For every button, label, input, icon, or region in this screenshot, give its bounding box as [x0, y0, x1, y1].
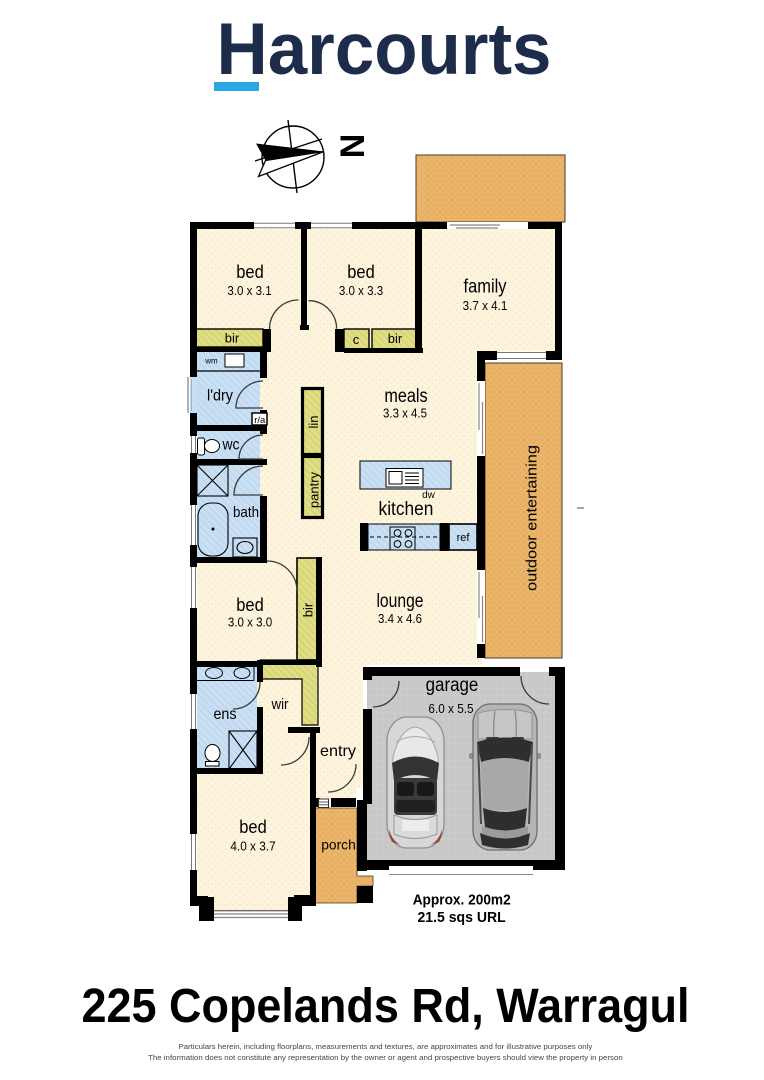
svg-text:bed: bed	[236, 594, 264, 615]
svg-text:Particulars herein, including: Particulars herein, including floorplans…	[179, 1042, 593, 1051]
svg-text:3.0 x 3.0: 3.0 x 3.0	[228, 615, 272, 630]
svg-text:bir: bir	[301, 602, 316, 617]
svg-text:The information does not const: The information does not constitute any …	[148, 1053, 623, 1062]
svg-text:entry: entry	[320, 743, 356, 760]
svg-text:3.0 x 3.3: 3.0 x 3.3	[339, 283, 383, 298]
svg-text:3.4 x 4.6: 3.4 x 4.6	[378, 611, 422, 626]
svg-text:l'dry: l'dry	[207, 388, 233, 405]
svg-text:bath: bath	[233, 504, 259, 521]
svg-text:Harcourts: Harcourts	[217, 9, 552, 90]
svg-text:bir: bir	[225, 331, 240, 346]
svg-text:ens: ens	[214, 706, 237, 723]
svg-text:N: N	[333, 134, 371, 159]
svg-text:outdoor entertaining: outdoor entertaining	[524, 445, 541, 591]
svg-text:lin: lin	[306, 415, 321, 428]
svg-text:kitchen: kitchen	[379, 499, 434, 520]
svg-text:wm: wm	[204, 357, 218, 366]
svg-text:Approx. 200m2: Approx. 200m2	[413, 892, 511, 909]
svg-text:wir: wir	[271, 696, 289, 713]
svg-text:bir: bir	[388, 331, 403, 346]
svg-text:pantry: pantry	[307, 471, 322, 508]
svg-text:3.3 x 4.5: 3.3 x 4.5	[383, 406, 427, 421]
svg-text:meals: meals	[384, 386, 427, 407]
svg-text:lounge: lounge	[376, 591, 423, 612]
svg-text:6.0 x 5.5: 6.0 x 5.5	[428, 701, 473, 716]
svg-text:garage: garage	[426, 675, 479, 696]
svg-text:3.7 x 4.1: 3.7 x 4.1	[463, 298, 508, 313]
svg-text:c: c	[353, 332, 360, 347]
svg-text:family: family	[464, 277, 507, 298]
svg-text:bed: bed	[236, 261, 264, 282]
svg-text:3.0 x 3.1: 3.0 x 3.1	[227, 283, 271, 298]
svg-text:wc: wc	[222, 437, 240, 454]
svg-text:21.5 sqs URL: 21.5 sqs URL	[417, 909, 505, 926]
svg-text:225 Copelands Rd, Warragul: 225 Copelands Rd, Warragul	[82, 980, 690, 1033]
svg-text:ref: ref	[457, 532, 471, 544]
svg-text:porch: porch	[321, 837, 356, 853]
svg-text:r/a: r/a	[254, 415, 266, 426]
svg-text:bed: bed	[347, 261, 375, 282]
svg-text:4.0 x 3.7: 4.0 x 3.7	[230, 839, 275, 854]
svg-text:bed: bed	[239, 816, 267, 837]
